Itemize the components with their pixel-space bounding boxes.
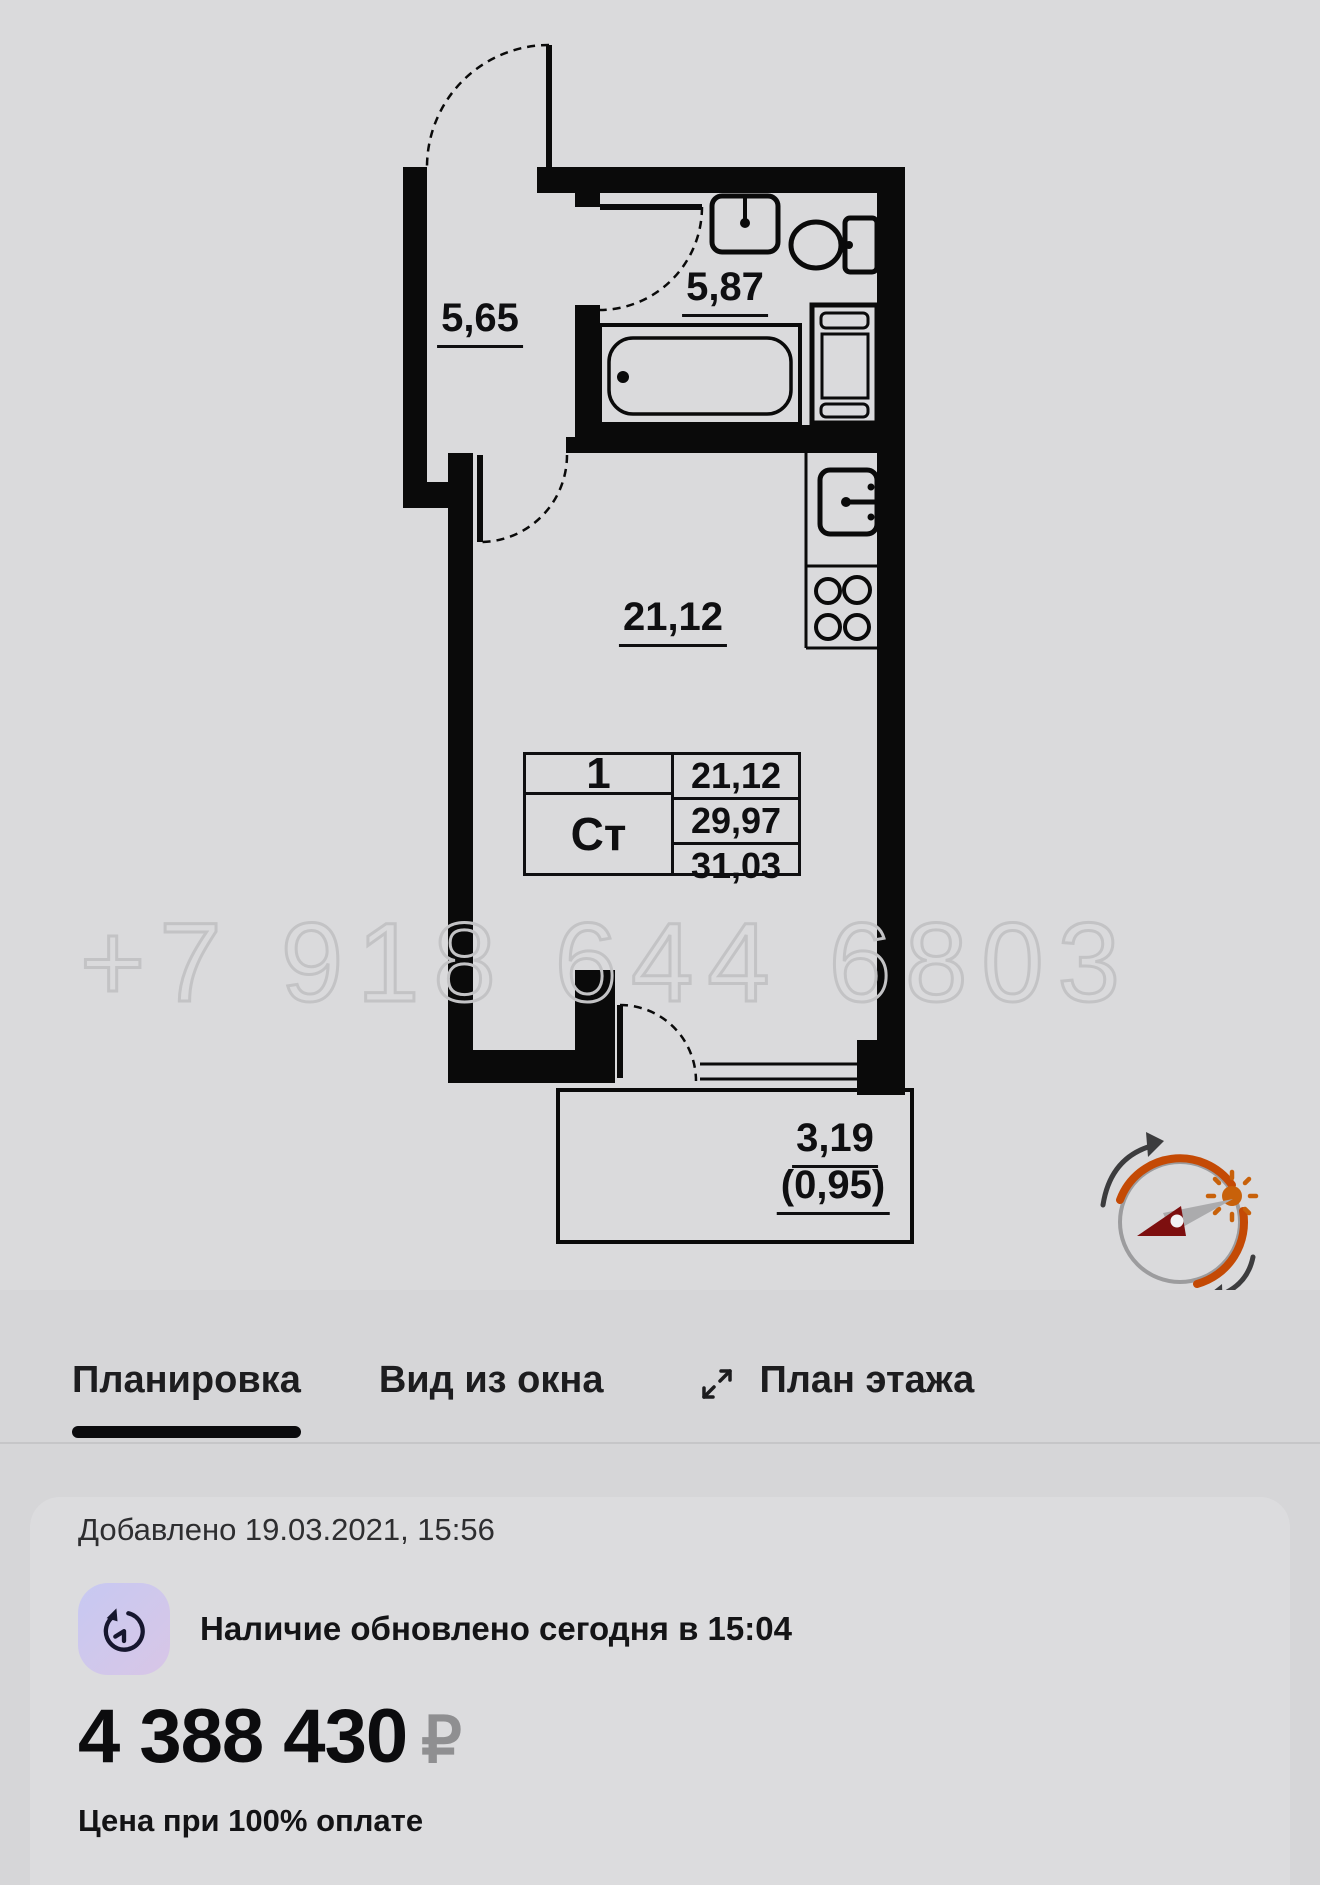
- price-value: 4 388 430: [78, 1693, 407, 1780]
- kitchen-sink-icon: [820, 470, 877, 534]
- entry-door: [427, 45, 549, 170]
- washer-cabinet-icon: [812, 305, 877, 423]
- table-rooms-count: 1: [526, 755, 671, 795]
- tab-floor-plan[interactable]: План этажа: [695, 1292, 974, 1442]
- price-row: 4 388 430 ₽: [78, 1693, 462, 1780]
- expand-diagonal-icon: [695, 1362, 739, 1406]
- table-apartment-type: Ст: [526, 795, 671, 873]
- tab-window-view[interactable]: Вид из окна: [379, 1292, 604, 1442]
- balcony-window: [700, 1064, 857, 1079]
- balcony-coeff-label: (0,95): [777, 1163, 890, 1215]
- tab-floor-plan-label: План этажа: [759, 1359, 974, 1402]
- room-door: [480, 455, 567, 542]
- room-area-label: 21,12: [619, 595, 727, 647]
- table-living-area: 21,12: [674, 755, 798, 797]
- table-area: 29,97: [674, 797, 798, 842]
- bathroom-area-label: 5,87: [682, 265, 768, 317]
- tab-bar: Планировка Вид из окна План этажа: [0, 1292, 1320, 1444]
- table-total-area: 31,03: [674, 842, 798, 887]
- active-tab-underline: [72, 1426, 301, 1438]
- bathroom-sink-icon: [712, 196, 778, 252]
- apartment-info-table: 1 Ст 21,12 29,97 31,03: [523, 752, 801, 876]
- listing-info-card: Добавлено 19.03.2021, 15:56 Наличие обно…: [30, 1497, 1290, 1885]
- added-date-text: Добавлено 19.03.2021, 15:56: [78, 1512, 495, 1548]
- hall-area-label: 5,65: [437, 296, 523, 348]
- listing-screen: 5,65 5,87 21,12 3,19 (0,95) 1 Ст 21,12 2…: [0, 0, 1320, 1885]
- sun-orientation-compass-icon: [1103, 1132, 1256, 1290]
- availability-text: Наличие обновлено сегодня в 15:04: [200, 1610, 792, 1648]
- availability-row: Наличие обновлено сегодня в 15:04: [78, 1583, 792, 1675]
- history-clock-icon: [78, 1583, 170, 1675]
- phone-watermark: +7 918 644 6803: [80, 898, 1134, 1027]
- tab-layout[interactable]: Планировка: [72, 1292, 301, 1442]
- tab-window-view-label: Вид из окна: [379, 1359, 604, 1402]
- price-note-text: Цена при 100% оплате: [78, 1803, 423, 1839]
- balcony-area-label: 3,19: [792, 1116, 878, 1168]
- tab-layout-label: Планировка: [72, 1359, 301, 1402]
- sun-icon: [1208, 1172, 1256, 1220]
- bathtub-icon: [600, 325, 800, 424]
- toilet-icon: [791, 218, 877, 272]
- floor-plan-image[interactable]: 5,65 5,87 21,12 3,19 (0,95) 1 Ст 21,12 2…: [0, 0, 1320, 1290]
- ruble-sign: ₽: [421, 1703, 462, 1778]
- stove-icon: [816, 577, 870, 639]
